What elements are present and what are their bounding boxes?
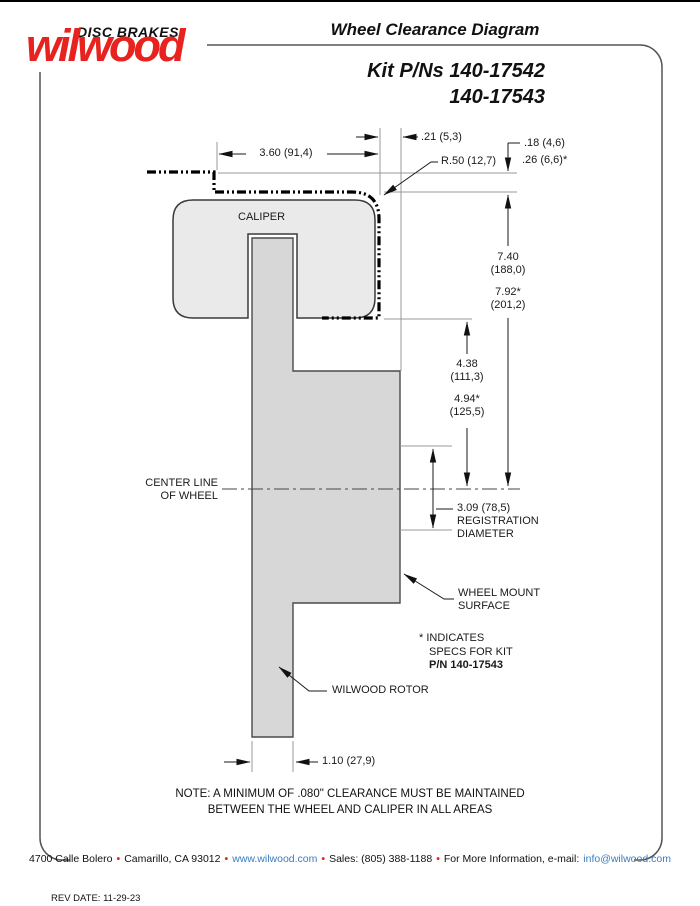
dim-21-label: .21 (5,3) [421, 131, 462, 144]
asterisk-spec-note: * INDICATES SPECS FOR KIT P/N 140-17543 [419, 632, 513, 673]
registration-l2: REGISTRATION [457, 515, 539, 528]
dim-4-94-mm: (125,5) [436, 406, 498, 419]
rev-date: REV DATE: 11-29-23 [51, 893, 140, 904]
dim-18-label: .18 (4,6) [524, 137, 565, 150]
center-line-l1: CENTER LINE [90, 477, 218, 490]
footer-contact-bar: 4700 Calle Bolero • Camarillo, CA 93012 … [0, 853, 700, 865]
registration-l3: DIAMETER [457, 528, 539, 541]
footer-sales-phone: Sales: (805) 388-1188 [329, 853, 432, 865]
dim-7-40-mm: (188,0) [477, 264, 539, 277]
footer-bullet: • [321, 853, 325, 865]
kit-line-1: Kit P/Ns 140-17542 [320, 58, 545, 84]
wheel-mount-l2: SURFACE [458, 600, 540, 613]
radius-label: R.50 (12,7) [441, 155, 496, 168]
dim-3-60-label: 3.60 (91,4) [246, 147, 326, 160]
registration-diameter-label: 3.09 (78,5) REGISTRATION DIAMETER [457, 502, 539, 541]
footer-website-link[interactable]: www.wilwood.com [232, 853, 317, 865]
kit-line-2: 140-17543 [320, 84, 545, 110]
spec-note-l2: SPECS FOR KIT [419, 646, 513, 660]
dim-7-40-label: 7.40 (188,0) [477, 251, 539, 276]
wheel-mount-l1: WHEEL MOUNT [458, 587, 540, 600]
caliper-label: CALIPER [238, 211, 296, 224]
footer-address: 4700 Calle Bolero [29, 853, 112, 865]
frame-border-left [40, 72, 70, 860]
wheel-mount-surface-label: WHEEL MOUNT SURFACE [458, 587, 540, 612]
wilwood-rotor-label: WILWOOD ROTOR [332, 684, 429, 697]
dim-7-92-label: 7.92* (201,2) [477, 286, 539, 311]
clearance-note: NOTE: A MINIMUM OF .080" CLEARANCE MUST … [0, 787, 700, 818]
spec-note-l1: * INDICATES [419, 632, 513, 646]
footer-bullet: • [117, 853, 121, 865]
kit-part-numbers: Kit P/Ns 140-17542 140-17543 [320, 58, 545, 110]
registration-l1: 3.09 (78,5) [457, 502, 539, 515]
dim-7-40-inches: 7.40 [477, 251, 539, 264]
technical-drawing-canvas [0, 0, 700, 906]
spec-note-l3: P/N 140-17543 [419, 659, 513, 673]
dim-26-label: .26 (6,6)* [522, 154, 567, 167]
radius-leader [384, 162, 438, 195]
clearance-note-l2: BETWEEN THE WHEEL AND CALIPER IN ALL ARE… [0, 803, 700, 819]
footer-bullet: • [225, 853, 229, 865]
clearance-note-l1: NOTE: A MINIMUM OF .080" CLEARANCE MUST … [0, 787, 700, 803]
wilwood-logo: wilwood [26, 24, 182, 68]
footer-email-link[interactable]: info@wilwood.com [583, 853, 671, 865]
dim-4-94-label: 4.94* (125,5) [436, 393, 498, 418]
dim-4-38-inches: 4.38 [436, 358, 498, 371]
wheel-mount-leader [404, 574, 454, 599]
dim-1-10-label: 1.10 (27,9) [322, 755, 375, 768]
dim-7-92-mm: (201,2) [477, 299, 539, 312]
dim-7-92-inches: 7.92* [477, 286, 539, 299]
center-line-l2: OF WHEEL [90, 490, 218, 503]
dim-4-38-label: 4.38 (111,3) [436, 358, 498, 383]
footer-city: Camarillo, CA 93012 [124, 853, 220, 865]
footer-bullet: • [436, 853, 440, 865]
page-title: Wheel Clearance Diagram [270, 20, 600, 40]
center-line-label: CENTER LINE OF WHEEL [90, 477, 218, 502]
dim-4-94-inches: 4.94* [436, 393, 498, 406]
wheel-clearance-diagram-page: DISC BRAKES wilwood Wheel Clearance Diag… [0, 0, 700, 906]
dim-4-38-mm: (111,3) [436, 371, 498, 384]
footer-info-label: For More Information, e-mail: [444, 853, 579, 865]
